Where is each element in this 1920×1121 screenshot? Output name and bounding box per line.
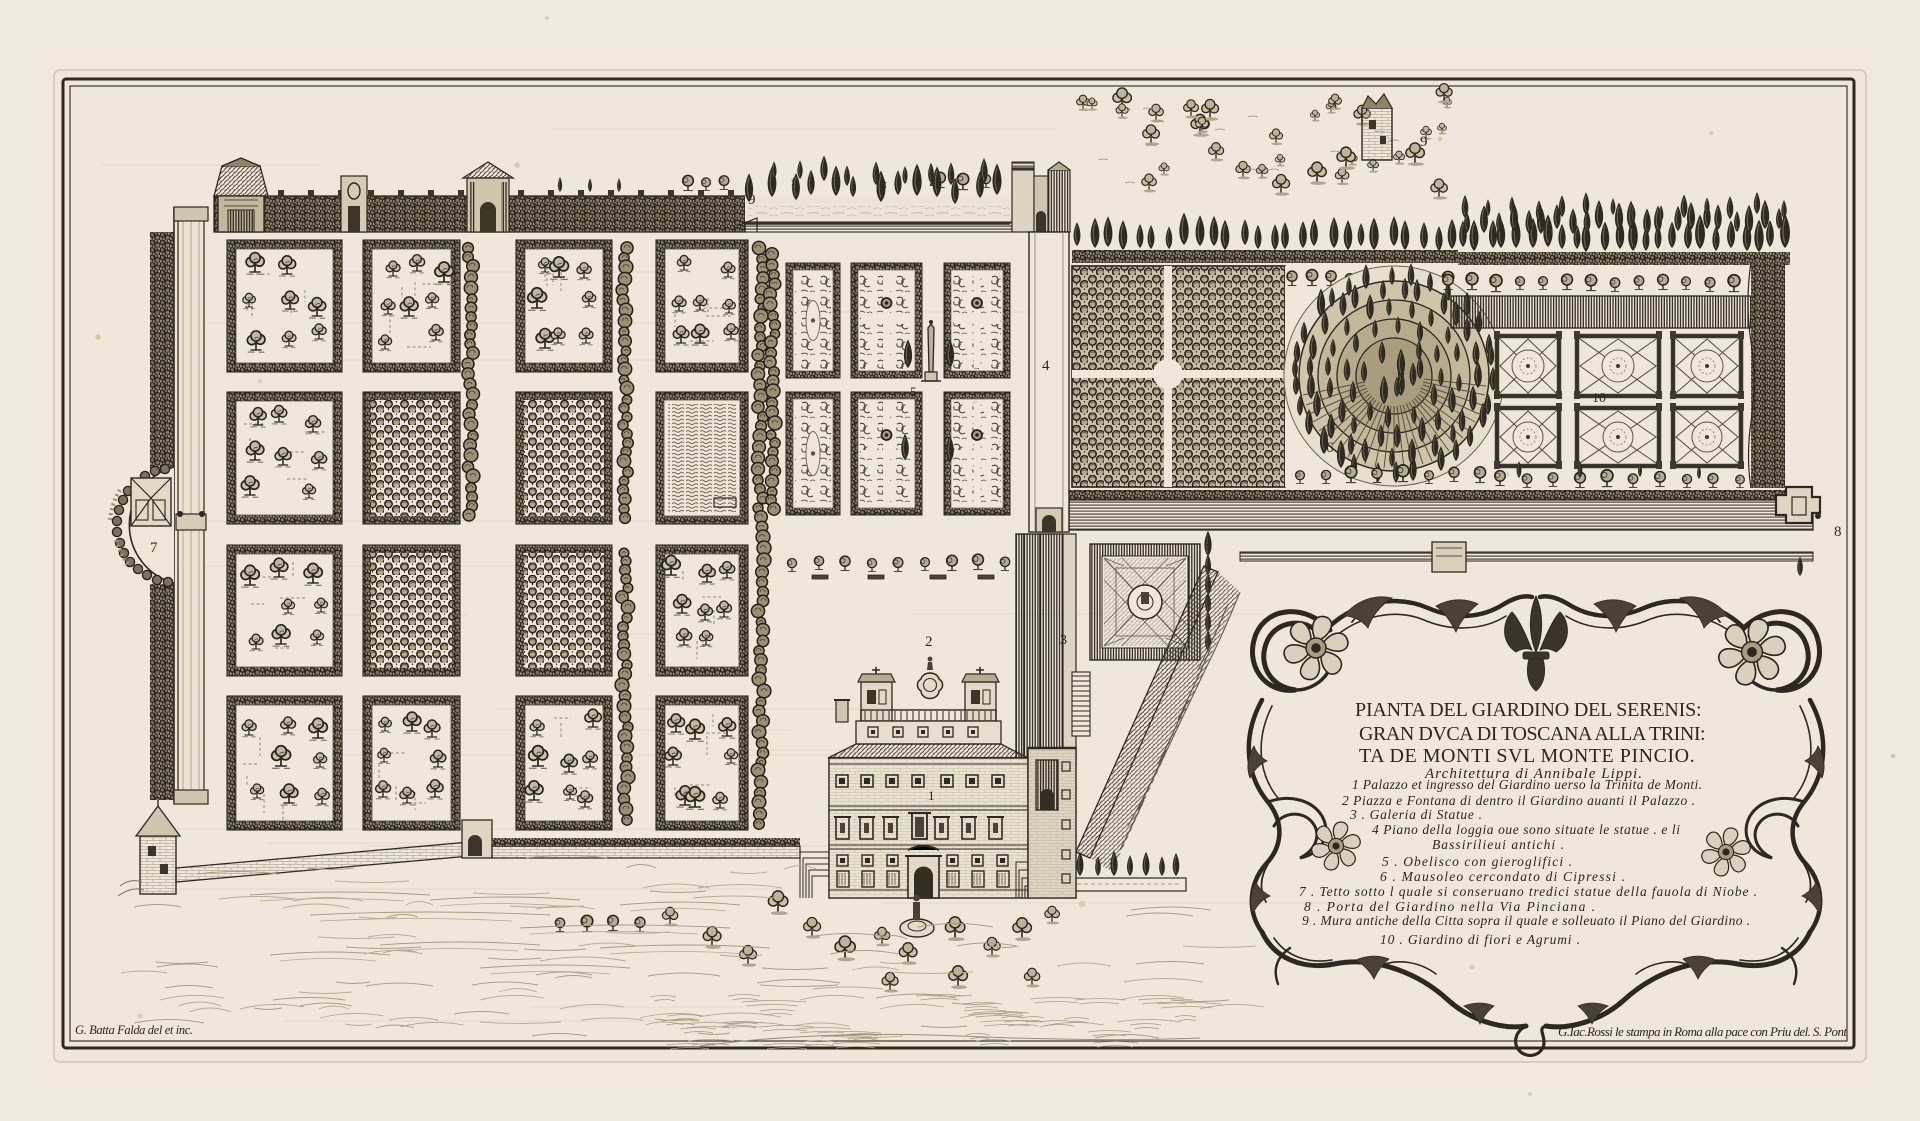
svg-text:10: 10 xyxy=(1592,391,1606,406)
svg-text:1 Palazzo et ingresso del Giar: 1 Palazzo et ingresso del Giardino uerso… xyxy=(1352,777,1702,792)
svg-text:4 Piano della loggia oue sono: 4 Piano della loggia oue sono situate le… xyxy=(1372,822,1680,837)
svg-text:G.Iac.Rossi le stampa in Roma: G.Iac.Rossi le stampa in Roma alla pace … xyxy=(1558,1024,1847,1039)
svg-text:6 . Mausoleo cercondato di Cip: 6 . Mausoleo cercondato di Cipressi . xyxy=(1380,869,1625,884)
svg-text:10 . Giardino di fiori e Agrum: 10 . Giardino di fiori e Agrumi . xyxy=(1380,932,1580,947)
svg-text:9: 9 xyxy=(1420,134,1428,150)
svg-text:2 Piazza e Fontana di dentro i: 2 Piazza e Fontana di dentro il Giardino… xyxy=(1342,793,1695,808)
svg-text:5: 5 xyxy=(910,384,917,399)
svg-text:5 . Obelisco con gieroglifici: 5 . Obelisco con gieroglifici . xyxy=(1382,854,1572,869)
svg-text:PIANTA DEL GIARDINO DEL SERENI: PIANTA DEL GIARDINO DEL SERENIS: xyxy=(1355,699,1702,721)
svg-text:9 . Mura antiche della Citta s: 9 . Mura antiche della Citta sopra il qu… xyxy=(1302,913,1750,928)
svg-text:G. Batta Falda del et inc.: G. Batta Falda del et inc. xyxy=(75,1023,193,1037)
svg-text:GRAN DVCA DI TOSCANA ALLA TRIN: GRAN DVCA DI TOSCANA ALLA TRINI: xyxy=(1359,723,1706,745)
svg-text:7: 7 xyxy=(150,540,158,556)
svg-text:8: 8 xyxy=(1834,524,1842,540)
svg-text:Bassirilieui antichi .: Bassirilieui antichi . xyxy=(1432,837,1564,852)
svg-text:2: 2 xyxy=(925,634,933,650)
svg-text:6: 6 xyxy=(1326,440,1334,456)
svg-text:TA DE MONTI SVL MONTE PINCIO.: TA DE MONTI SVL MONTE PINCIO. xyxy=(1359,745,1695,767)
svg-text:3: 3 xyxy=(1060,633,1067,648)
svg-text:1: 1 xyxy=(928,788,935,803)
svg-text:7 . Tetto sotto l quale si con: 7 . Tetto sotto l quale si conseruano tr… xyxy=(1299,884,1757,899)
svg-text:8 . Porta del Giardino nella: 8 . Porta del Giardino nella Via Pincian… xyxy=(1304,899,1595,914)
svg-text:3 . Galeria di Statue .: 3 . Galeria di Statue . xyxy=(1349,807,1482,822)
svg-text:4: 4 xyxy=(1042,358,1050,374)
